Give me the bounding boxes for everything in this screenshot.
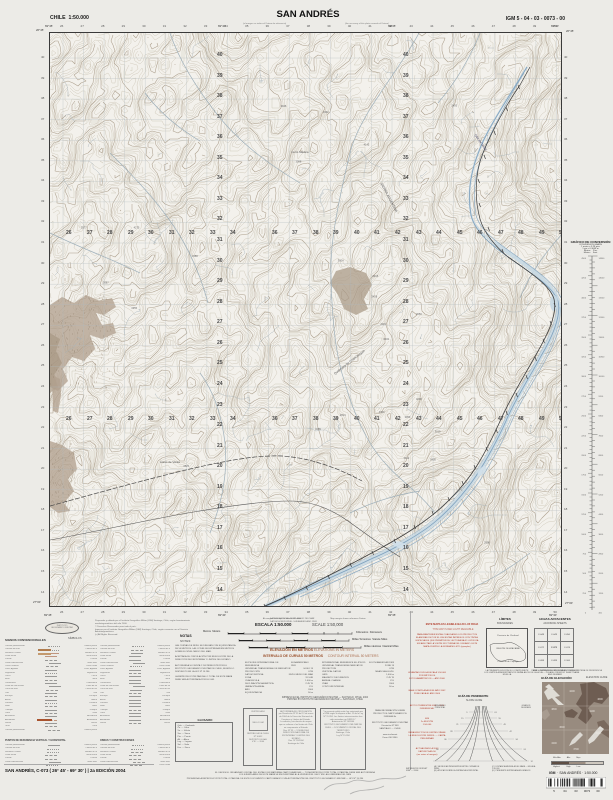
svg-text:4250: 4250 <box>581 278 586 280</box>
svg-text:3946: 3946 <box>281 104 287 108</box>
svg-text:24: 24 <box>217 381 223 387</box>
svg-text:5: 5 <box>553 789 555 793</box>
svg-text:00: 00 <box>596 789 600 793</box>
svg-text:3000: 3000 <box>581 376 586 378</box>
svg-text:27: 27 <box>87 230 93 236</box>
svg-text:2500: 2500 <box>581 416 586 418</box>
svg-text:50: 50 <box>559 230 562 236</box>
svg-text:3700: 3700 <box>573 748 579 751</box>
svg-text:34: 34 <box>230 416 236 422</box>
svg-text:3600: 3600 <box>559 726 565 729</box>
svg-text:34: 34 <box>230 230 236 236</box>
svg-text:REGIÓN DE ATACAMA: REGIÓN DE ATACAMA <box>496 647 520 650</box>
svg-text:03: 03 <box>574 789 578 793</box>
svg-text:6800: 6800 <box>599 455 604 457</box>
svg-text:6000: 6000 <box>599 475 604 477</box>
svg-text:28: 28 <box>107 230 113 236</box>
svg-text:4142: 4142 <box>364 143 370 147</box>
svg-text:2814: 2814 <box>340 413 346 417</box>
svg-text:42: 42 <box>395 416 401 422</box>
svg-text:0073: 0073 <box>584 789 591 793</box>
svg-text:37: 37 <box>292 416 298 422</box>
svg-text:4450: 4450 <box>379 410 385 414</box>
svg-text:30: 30 <box>148 230 154 236</box>
svg-text:27: 27 <box>403 319 409 325</box>
svg-text:8400: 8400 <box>599 416 604 418</box>
svg-text:4400: 4400 <box>599 514 604 516</box>
svg-text:48: 48 <box>518 230 524 236</box>
svg-text:17: 17 <box>403 525 409 531</box>
svg-text:40: 40 <box>354 416 360 422</box>
svg-text:40: 40 <box>354 230 360 236</box>
svg-text:40: 40 <box>403 52 409 58</box>
svg-text:2000: 2000 <box>599 573 604 575</box>
svg-text:55: 55 <box>499 718 502 720</box>
svg-text:26: 26 <box>217 340 223 346</box>
svg-text:37: 37 <box>217 114 223 120</box>
svg-text:2750: 2750 <box>581 396 586 398</box>
svg-text:25: 25 <box>403 360 409 366</box>
svg-text:3032: 3032 <box>383 337 389 341</box>
svg-text:24: 24 <box>524 749 527 751</box>
svg-text:23: 23 <box>403 402 409 408</box>
svg-text:29: 29 <box>128 230 134 236</box>
svg-text:36: 36 <box>403 134 409 140</box>
svg-text:47: 47 <box>498 230 504 236</box>
svg-text:3493: 3493 <box>451 103 457 107</box>
svg-text:Cerro Madera: Cerro Madera <box>291 150 309 154</box>
svg-text:28: 28 <box>450 731 453 733</box>
svg-text:32: 32 <box>217 216 223 222</box>
svg-text:500: 500 <box>583 573 587 575</box>
svg-text:38: 38 <box>313 230 319 236</box>
svg-text:20: 20 <box>217 463 223 469</box>
svg-text:Llano de Varas: Llano de Varas <box>160 460 180 464</box>
svg-text:4586: 4586 <box>192 254 198 258</box>
svg-text:13200: 13200 <box>599 297 606 299</box>
svg-text:4275: 4275 <box>134 226 140 230</box>
svg-text:4295: 4295 <box>416 397 422 401</box>
svg-text:27: 27 <box>87 416 93 422</box>
svg-text:23: 23 <box>217 402 223 408</box>
svg-text:25: 25 <box>217 360 223 366</box>
svg-text:46: 46 <box>477 230 483 236</box>
svg-text:3900: 3900 <box>595 732 601 735</box>
svg-text:2250: 2250 <box>581 435 586 437</box>
svg-text:28: 28 <box>107 416 113 422</box>
svg-text:14: 14 <box>217 587 223 593</box>
svg-text:48: 48 <box>518 416 524 422</box>
svg-text:38: 38 <box>313 416 319 422</box>
svg-text:3998: 3998 <box>296 160 302 164</box>
svg-text:4500: 4500 <box>581 258 586 260</box>
svg-text:33: 33 <box>210 416 216 422</box>
svg-text:39: 39 <box>333 416 339 422</box>
svg-text:3355: 3355 <box>131 306 137 310</box>
svg-text:4000: 4000 <box>581 297 586 299</box>
svg-text:37: 37 <box>403 114 409 120</box>
svg-text:3697: 3697 <box>103 281 109 285</box>
svg-text:26: 26 <box>66 230 72 236</box>
svg-text:33: 33 <box>210 230 216 236</box>
svg-text:15: 15 <box>461 718 464 720</box>
svg-text:49: 49 <box>539 230 545 236</box>
svg-text:29: 29 <box>128 416 134 422</box>
svg-text:36: 36 <box>272 230 278 236</box>
svg-text:26: 26 <box>66 416 72 422</box>
svg-text:50: 50 <box>559 416 562 422</box>
svg-text:36: 36 <box>444 739 447 741</box>
svg-text:5200: 5200 <box>599 494 604 496</box>
svg-text:4100: 4100 <box>589 710 595 713</box>
svg-text:33: 33 <box>403 196 409 202</box>
svg-text:43: 43 <box>416 416 422 422</box>
svg-text:1500: 1500 <box>581 494 586 496</box>
svg-text:Provincia de Chañaral: Provincia de Chañaral <box>497 634 519 637</box>
svg-text:40: 40 <box>217 52 223 58</box>
svg-text:16: 16 <box>217 545 223 551</box>
svg-text:31: 31 <box>169 230 175 236</box>
svg-text:1200: 1200 <box>599 593 604 595</box>
svg-text:42: 42 <box>510 731 513 733</box>
svg-text:49: 49 <box>504 724 507 726</box>
svg-text:29: 29 <box>217 278 223 284</box>
svg-text:2000: 2000 <box>581 455 586 457</box>
svg-text:31: 31 <box>217 237 223 243</box>
svg-text:3912: 3912 <box>404 456 410 460</box>
svg-text:0: 0 <box>585 613 587 614</box>
svg-text:10000: 10000 <box>599 376 606 378</box>
svg-text:35: 35 <box>217 155 223 161</box>
svg-text:3577: 3577 <box>81 226 87 230</box>
svg-text:29: 29 <box>403 278 409 284</box>
svg-text:41: 41 <box>374 416 380 422</box>
svg-text:250: 250 <box>583 593 587 595</box>
svg-text:30: 30 <box>148 416 154 422</box>
svg-text:42: 42 <box>395 230 401 236</box>
svg-text:9: 9 <box>466 712 468 714</box>
svg-text:3525: 3525 <box>183 464 189 468</box>
svg-text:31: 31 <box>169 416 175 422</box>
svg-text:44: 44 <box>436 416 442 422</box>
svg-text:38: 38 <box>403 93 409 99</box>
svg-text:30: 30 <box>403 258 409 264</box>
svg-text:34: 34 <box>403 175 409 181</box>
svg-text:36: 36 <box>217 134 223 140</box>
svg-text:11600: 11600 <box>599 337 605 339</box>
svg-text:32: 32 <box>189 416 195 422</box>
svg-text:10800: 10800 <box>599 357 606 359</box>
svg-text:33: 33 <box>217 196 223 202</box>
svg-text:21: 21 <box>403 443 409 449</box>
svg-text:3500: 3500 <box>581 337 586 339</box>
svg-text:2800: 2800 <box>599 554 604 556</box>
svg-text:15: 15 <box>217 566 223 572</box>
svg-text:46: 46 <box>436 749 439 751</box>
svg-text:44: 44 <box>436 230 442 236</box>
svg-text:47: 47 <box>498 416 504 422</box>
svg-text:14800: 14800 <box>599 258 606 260</box>
svg-text:3019: 3019 <box>435 430 441 434</box>
svg-text:750: 750 <box>583 554 587 556</box>
svg-text:61: 61 <box>495 712 498 714</box>
svg-text:12400: 12400 <box>599 317 606 319</box>
svg-text:4600: 4600 <box>597 698 603 701</box>
svg-text:2998: 2998 <box>484 540 490 544</box>
svg-text:21: 21 <box>456 724 459 726</box>
svg-text:19: 19 <box>217 484 223 490</box>
svg-text:400: 400 <box>599 613 603 614</box>
svg-text:28: 28 <box>403 299 409 305</box>
svg-text:32: 32 <box>403 216 409 222</box>
svg-text:3405: 3405 <box>430 458 436 462</box>
svg-text:Provincia de Copiapó: Provincia de Copiapó <box>498 660 520 663</box>
svg-text:27: 27 <box>217 319 223 325</box>
svg-text:18: 18 <box>403 504 409 510</box>
svg-text:4200: 4200 <box>569 690 575 693</box>
svg-text:3400: 3400 <box>551 742 557 745</box>
svg-text:39: 39 <box>217 73 223 79</box>
svg-text:20: 20 <box>403 463 409 469</box>
svg-text:3600: 3600 <box>599 534 604 536</box>
svg-text:41: 41 <box>374 230 380 236</box>
svg-text:32: 32 <box>189 230 195 236</box>
svg-text:34: 34 <box>217 175 223 181</box>
svg-text:18: 18 <box>217 504 223 510</box>
svg-text:14000: 14000 <box>599 278 606 280</box>
svg-text:15: 15 <box>403 566 409 572</box>
svg-text:7600: 7600 <box>599 435 604 437</box>
svg-text:24: 24 <box>403 381 409 387</box>
svg-text:31: 31 <box>403 237 409 243</box>
svg-text:38: 38 <box>217 93 223 99</box>
svg-text:49: 49 <box>539 416 545 422</box>
svg-text:04: 04 <box>563 789 567 793</box>
svg-text:12: 12 <box>531 761 534 763</box>
svg-text:19: 19 <box>403 484 409 490</box>
svg-text:45: 45 <box>457 416 463 422</box>
svg-text:3056: 3056 <box>416 312 422 316</box>
svg-text:1000: 1000 <box>581 534 586 536</box>
svg-text:1250: 1250 <box>581 514 586 516</box>
svg-text:35: 35 <box>403 155 409 161</box>
svg-text:39: 39 <box>403 73 409 79</box>
svg-text:22: 22 <box>403 422 409 428</box>
svg-text:30: 30 <box>217 258 223 264</box>
svg-text:3415: 3415 <box>372 274 378 278</box>
svg-text:22: 22 <box>217 422 223 428</box>
svg-text:28: 28 <box>217 299 223 305</box>
svg-text:21: 21 <box>217 443 223 449</box>
svg-text:37: 37 <box>292 230 298 236</box>
svg-text:3959: 3959 <box>405 415 411 419</box>
svg-text:36: 36 <box>272 416 278 422</box>
svg-text:43: 43 <box>416 230 422 236</box>
svg-text:39: 39 <box>333 230 339 236</box>
svg-text:17: 17 <box>217 525 223 531</box>
svg-text:46: 46 <box>477 416 483 422</box>
svg-text:26: 26 <box>403 340 409 346</box>
svg-text:4189: 4189 <box>315 427 321 431</box>
svg-text:34: 34 <box>516 739 519 741</box>
svg-text:2921: 2921 <box>381 322 387 326</box>
svg-text:3362: 3362 <box>323 110 329 114</box>
svg-text:16: 16 <box>403 545 409 551</box>
svg-text:3750: 3750 <box>581 317 586 319</box>
svg-text:3004: 3004 <box>338 259 344 263</box>
svg-text:9200: 9200 <box>599 396 604 398</box>
svg-text:3250: 3250 <box>581 357 586 359</box>
svg-text:3439: 3439 <box>371 294 377 298</box>
svg-text:14: 14 <box>403 587 409 593</box>
svg-text:3800: 3800 <box>551 708 557 711</box>
svg-text:45: 45 <box>457 230 463 236</box>
svg-text:1750: 1750 <box>581 475 586 477</box>
